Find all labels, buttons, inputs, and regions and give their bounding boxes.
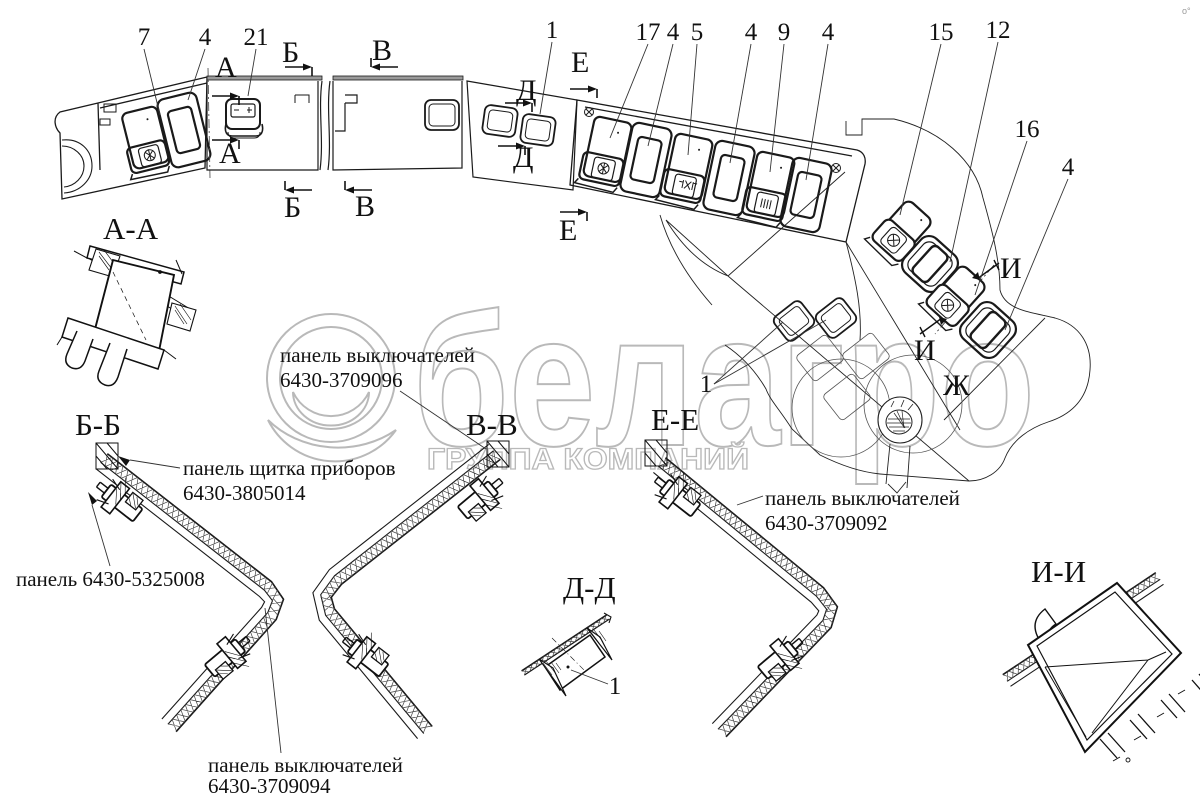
svg-text:1: 1: [609, 673, 622, 700]
svg-text:5: 5: [691, 19, 704, 46]
svg-text:12: 12: [986, 17, 1011, 44]
svg-text:В: В: [372, 34, 392, 67]
svg-text:Ж: Ж: [943, 369, 970, 402]
svg-text:панель 6430-5325008: панель 6430-5325008: [16, 567, 205, 591]
svg-text:панель щитка приборов: панель щитка приборов: [183, 456, 396, 480]
svg-text:17: 17: [636, 19, 661, 46]
svg-text:Б: Б: [284, 191, 301, 224]
svg-text:И: И: [1000, 252, 1022, 285]
svg-text:1: 1: [700, 371, 713, 398]
svg-text:21: 21: [244, 24, 269, 51]
svg-text:9: 9: [778, 19, 791, 46]
svg-text:6430-3805014: 6430-3805014: [183, 481, 306, 505]
svg-text:7: 7: [138, 24, 151, 51]
svg-text:4: 4: [667, 19, 680, 46]
svg-text:Е: Е: [559, 214, 577, 247]
svg-text:А: А: [215, 51, 237, 84]
svg-text:15: 15: [929, 19, 954, 46]
svg-text:4: 4: [745, 19, 758, 46]
svg-text:В: В: [355, 190, 375, 223]
svg-text:6430-3709094: 6430-3709094: [208, 774, 331, 793]
svg-text:Д-Д: Д-Д: [563, 570, 616, 605]
svg-text:И: И: [914, 334, 936, 367]
svg-text:4: 4: [199, 24, 212, 51]
svg-text:Е: Е: [571, 46, 589, 79]
svg-text:панель выключателей: панель выключателей: [280, 343, 475, 367]
svg-text:А-А: А-А: [103, 211, 159, 246]
svg-text:1: 1: [546, 17, 559, 44]
svg-text:ГРУППА КОМПАНИЙ: ГРУППА КОМПАНИЙ: [427, 442, 749, 476]
svg-text:o°: o°: [1182, 6, 1191, 16]
svg-text:Б-Б: Б-Б: [75, 407, 121, 442]
svg-text:В-В: В-В: [466, 407, 518, 442]
svg-text:16: 16: [1015, 116, 1040, 143]
svg-text:панель выключателей: панель выключателей: [765, 486, 960, 510]
svg-text:Е-Е: Е-Е: [651, 402, 699, 437]
svg-text:4: 4: [1062, 154, 1075, 181]
svg-text:6430-3709096: 6430-3709096: [280, 368, 403, 392]
svg-text:4: 4: [822, 19, 835, 46]
svg-text:6430-3709092: 6430-3709092: [765, 511, 888, 535]
svg-text:И-И: И-И: [1031, 554, 1086, 589]
svg-text:Б: Б: [282, 36, 299, 69]
